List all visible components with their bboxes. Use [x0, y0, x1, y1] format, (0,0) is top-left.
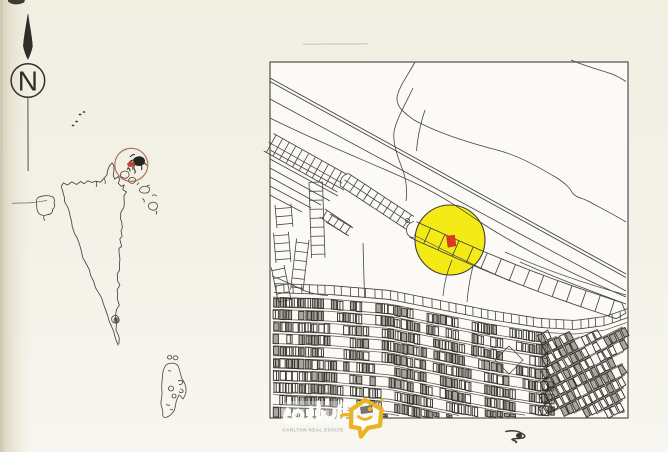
svg-text:N: N	[18, 66, 38, 97]
svg-text:CARLTON REAL ESTATE: CARLTON REAL ESTATE	[282, 428, 343, 433]
